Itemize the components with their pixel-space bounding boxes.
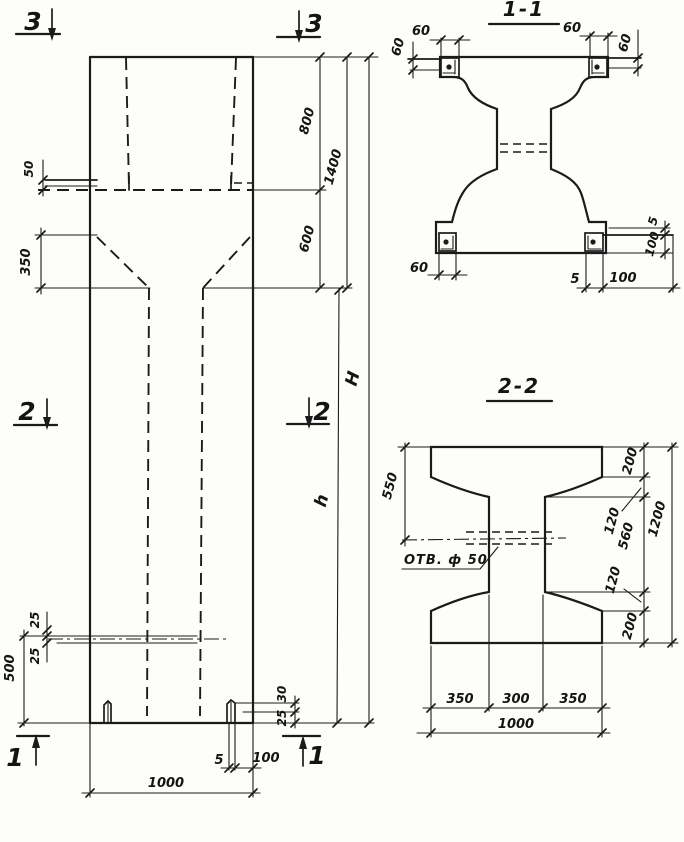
section-1-1-title: 1-1 (503, 0, 545, 21)
dim-500: 500 (3, 630, 57, 727)
dim-500-label: 500 (3, 654, 18, 681)
hole-callout-label: ОТВ. ф 50 (404, 553, 488, 568)
dim-550: 550 (380, 443, 431, 546)
dim-1200: 1200 (646, 443, 676, 647)
section-2-2-view: 2-2 550 ОТВ. ф 50 (380, 374, 678, 737)
dim-60-top-right: 60 (563, 21, 581, 36)
dim-base-5-100: 5 100 (214, 723, 279, 797)
dim-800-label: 800 (297, 106, 319, 136)
dim-60-top-left: 60 (412, 24, 430, 39)
mark-2-right-label: 2 (313, 397, 330, 426)
dim-5-label: 5 (214, 753, 223, 768)
elevation-view: 50 350 25 25 (3, 7, 378, 797)
mark-3-left-label: 3 (24, 7, 41, 36)
dim-1400-label: 1400 (322, 148, 346, 187)
dim-100-label: 100 (252, 751, 279, 766)
dim-1000-label: 1000 (148, 776, 184, 791)
section-2-2-outline (431, 447, 602, 643)
mark-3-right-label: 3 (305, 9, 322, 38)
dim-1200-label: 1200 (646, 500, 670, 539)
dim-60-left: 60 (389, 36, 408, 57)
dim-350: 350 (19, 228, 45, 294)
mark-1-left-label: 1 (6, 743, 23, 772)
hole-lines (402, 532, 566, 544)
hole-strip: 25 25 (28, 612, 227, 665)
section-mark-2-right: 2 (287, 397, 331, 429)
section-mark-3-right: 3 (277, 9, 323, 43)
dim-chain-right: 800 600 1400 h H (253, 53, 373, 727)
dim-1000: 1000 (82, 723, 260, 797)
mark-1-right-label: 1 (308, 741, 325, 770)
dim-5-bottom: 5 (570, 272, 579, 287)
dim-60-right: 60 (616, 32, 635, 53)
dim-1000-section: 1000 (498, 717, 534, 732)
dim-600-label: 600 (297, 224, 319, 254)
column-feet (104, 700, 299, 723)
dim-350-label: 350 (19, 248, 34, 275)
section-2-2-title: 2-2 (498, 374, 540, 398)
dim-bottom-widths: 350 300 350 1000 (417, 595, 610, 737)
dim-50-label: 50 (22, 161, 36, 178)
hole-callout: ОТВ. ф 50 (402, 547, 498, 569)
anchor-strips (408, 58, 673, 253)
embedded-plates (439, 58, 607, 251)
dim-H-label: H (342, 369, 365, 388)
dim-350-left: 350 (446, 692, 473, 707)
section-mark-3-left: 3 (16, 7, 60, 41)
section-mark-1-left: 1 (6, 734, 49, 772)
drawing-sheet: 50 350 25 25 (0, 0, 684, 842)
dim-chain-right-inner: 200 120 560 120 200 (602, 443, 648, 647)
dim-350-right: 350 (559, 692, 586, 707)
dim-200-bottom: 200 (620, 611, 642, 641)
dim-25-bottom-label: 25 (28, 648, 42, 665)
technical-drawing-column: 50 350 25 25 (0, 0, 684, 842)
dim-550-label: 550 (380, 471, 402, 501)
column-outline (18, 57, 378, 723)
dim-300: 300 (502, 692, 529, 707)
dim-30-label: 30 (275, 686, 289, 703)
section-2-2-ext-lines (545, 447, 678, 643)
dim-25-foot-label: 25 (275, 710, 289, 727)
dim-60-bottom-left: 60 (410, 261, 428, 276)
dim-25-top-label: 25 (28, 612, 42, 629)
dim-120-bottom: 120 (603, 565, 625, 595)
dim-h-label: h (311, 492, 333, 509)
section-mark-1-right: 1 (283, 735, 326, 770)
dim-5-side: 5 (645, 215, 661, 227)
socket-hidden-lines (38, 58, 253, 190)
section-1-1-view: 1-1 (389, 0, 680, 292)
dim-200-top: 200 (620, 446, 642, 476)
mark-2-left-label: 2 (18, 397, 35, 426)
dim-100-bottom: 100 (609, 271, 636, 286)
section-1-1-outline (436, 57, 608, 253)
taper-hidden-lines (35, 235, 352, 716)
dim-foot-30-25: 30 25 (275, 686, 299, 728)
section-1-1-dims: 60 60 60 60 60 (389, 21, 680, 292)
section-mark-2-left: 2 (14, 397, 57, 430)
